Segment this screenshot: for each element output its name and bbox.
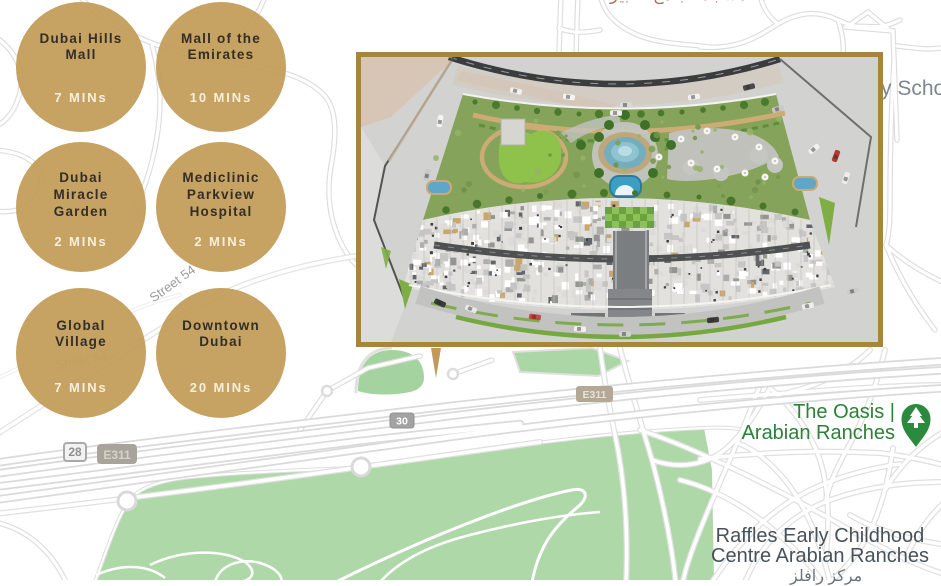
svg-text:E311: E311 — [583, 389, 607, 401]
svg-text:28: 28 — [68, 445, 82, 459]
svg-text:E311: E311 — [103, 448, 131, 462]
svg-text:30: 30 — [396, 416, 408, 428]
